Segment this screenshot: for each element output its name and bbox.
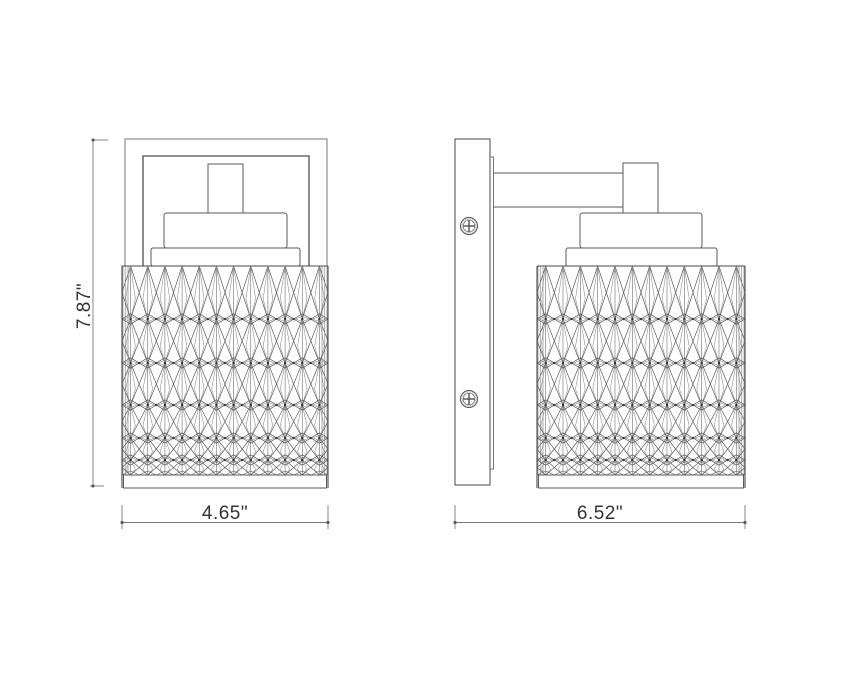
side-wall-plate	[455, 139, 494, 485]
drawing-page: 7.87" 4.65" 6.52"	[0, 0, 850, 680]
side-stem-and-caps	[566, 163, 717, 267]
height-dimension-label: 7.87"	[74, 283, 95, 329]
front-stem-and-caps	[151, 164, 300, 266]
front-view	[96, 139, 354, 488]
technical-drawing: 7.87" 4.65" 6.52"	[0, 0, 850, 680]
side-view	[455, 139, 771, 488]
side-depth-dimension-label: 6.52"	[577, 503, 623, 524]
front-crystal-shade	[96, 266, 354, 488]
side-arm	[494, 173, 624, 207]
side-crystal-shade	[511, 266, 771, 488]
phillips-screw-icon	[461, 218, 478, 235]
phillips-screw-icon	[461, 391, 478, 408]
front-width-dimension-label: 4.65"	[202, 503, 248, 524]
